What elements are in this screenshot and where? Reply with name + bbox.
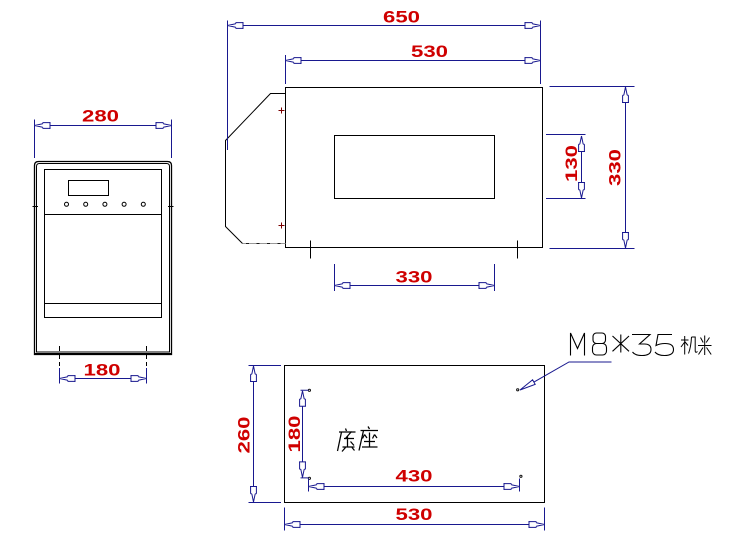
svg-text:280: 280	[82, 108, 119, 126]
svg-text:180: 180	[84, 362, 121, 380]
svg-text:430: 430	[396, 468, 433, 486]
svg-text:650: 650	[383, 9, 420, 27]
svg-text:260: 260	[236, 417, 254, 454]
svg-text:330: 330	[607, 149, 625, 186]
svg-text:130: 130	[563, 145, 581, 182]
svg-text:530: 530	[411, 43, 448, 61]
svg-text:330: 330	[396, 269, 433, 287]
svg-text:530: 530	[396, 506, 433, 524]
svg-text:180: 180	[286, 416, 304, 453]
